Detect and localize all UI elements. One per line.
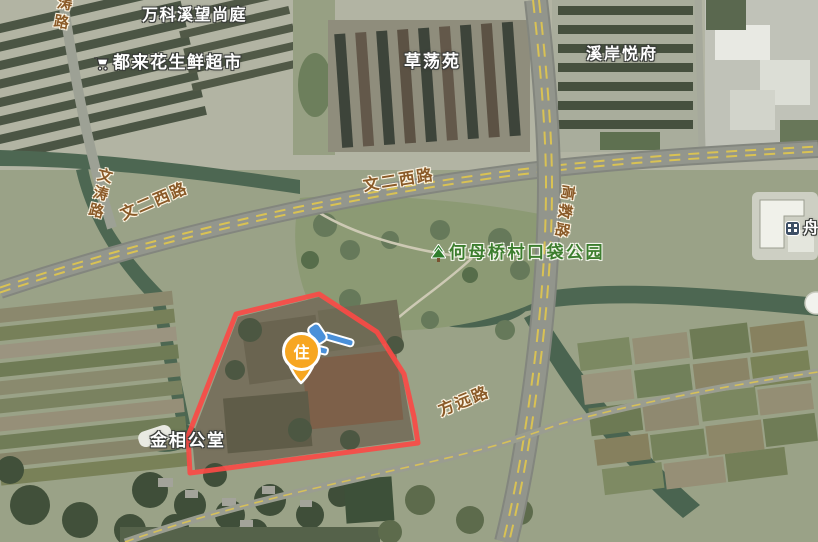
road-label-fangyuanlu: 方远路 [436, 384, 492, 419]
poi-label-boat-building-text: 舟 [803, 220, 818, 236]
poi-label-boat-building[interactable]: 舟 [785, 220, 818, 236]
poi-label-jinxianggongtang[interactable]: 金相公堂 [150, 433, 226, 450]
poi-label-supermarket[interactable]: 都来花生鲜超市 [93, 55, 243, 72]
poi-label-vanke[interactable]: 万科溪望尚庭 [142, 7, 247, 23]
poi-label-pocket-park-text: 何母桥村口袋公园 [449, 245, 605, 262]
tree-icon [431, 244, 446, 262]
road-label-wenerxilu: 文二西路 [362, 167, 436, 194]
road-label-gaojiaolu: 高教路 [552, 184, 576, 243]
poi-label-pocket-park[interactable]: 何母桥村口袋公园 [431, 244, 605, 262]
satellite-imagery [0, 0, 818, 542]
marker-label: 住 [293, 343, 309, 362]
auction-gavel-icon [306, 322, 354, 355]
poi-label-caodangyuan[interactable]: 草荡苑 [404, 54, 461, 71]
poi-label-xianyuefu[interactable]: 溪岸悦府 [586, 46, 658, 62]
road-label-wenerxilu-west: 文二西路 [118, 180, 191, 223]
shopping-cart-icon [93, 55, 110, 72]
map-canvas[interactable]: 万科溪望尚庭 都来花生鲜超市 草荡苑 溪岸悦府 文涛路 文涛路 文二西路 文二西… [0, 0, 818, 542]
building-icon [785, 221, 800, 236]
poi-label-supermarket-text: 都来花生鲜超市 [113, 55, 243, 72]
residential-parcel-marker[interactable]: 住 [284, 334, 320, 384]
road-label-wentaolu: 文涛路 [86, 166, 114, 222]
road-label-wentaolu-north: 文涛路 [51, 0, 76, 34]
